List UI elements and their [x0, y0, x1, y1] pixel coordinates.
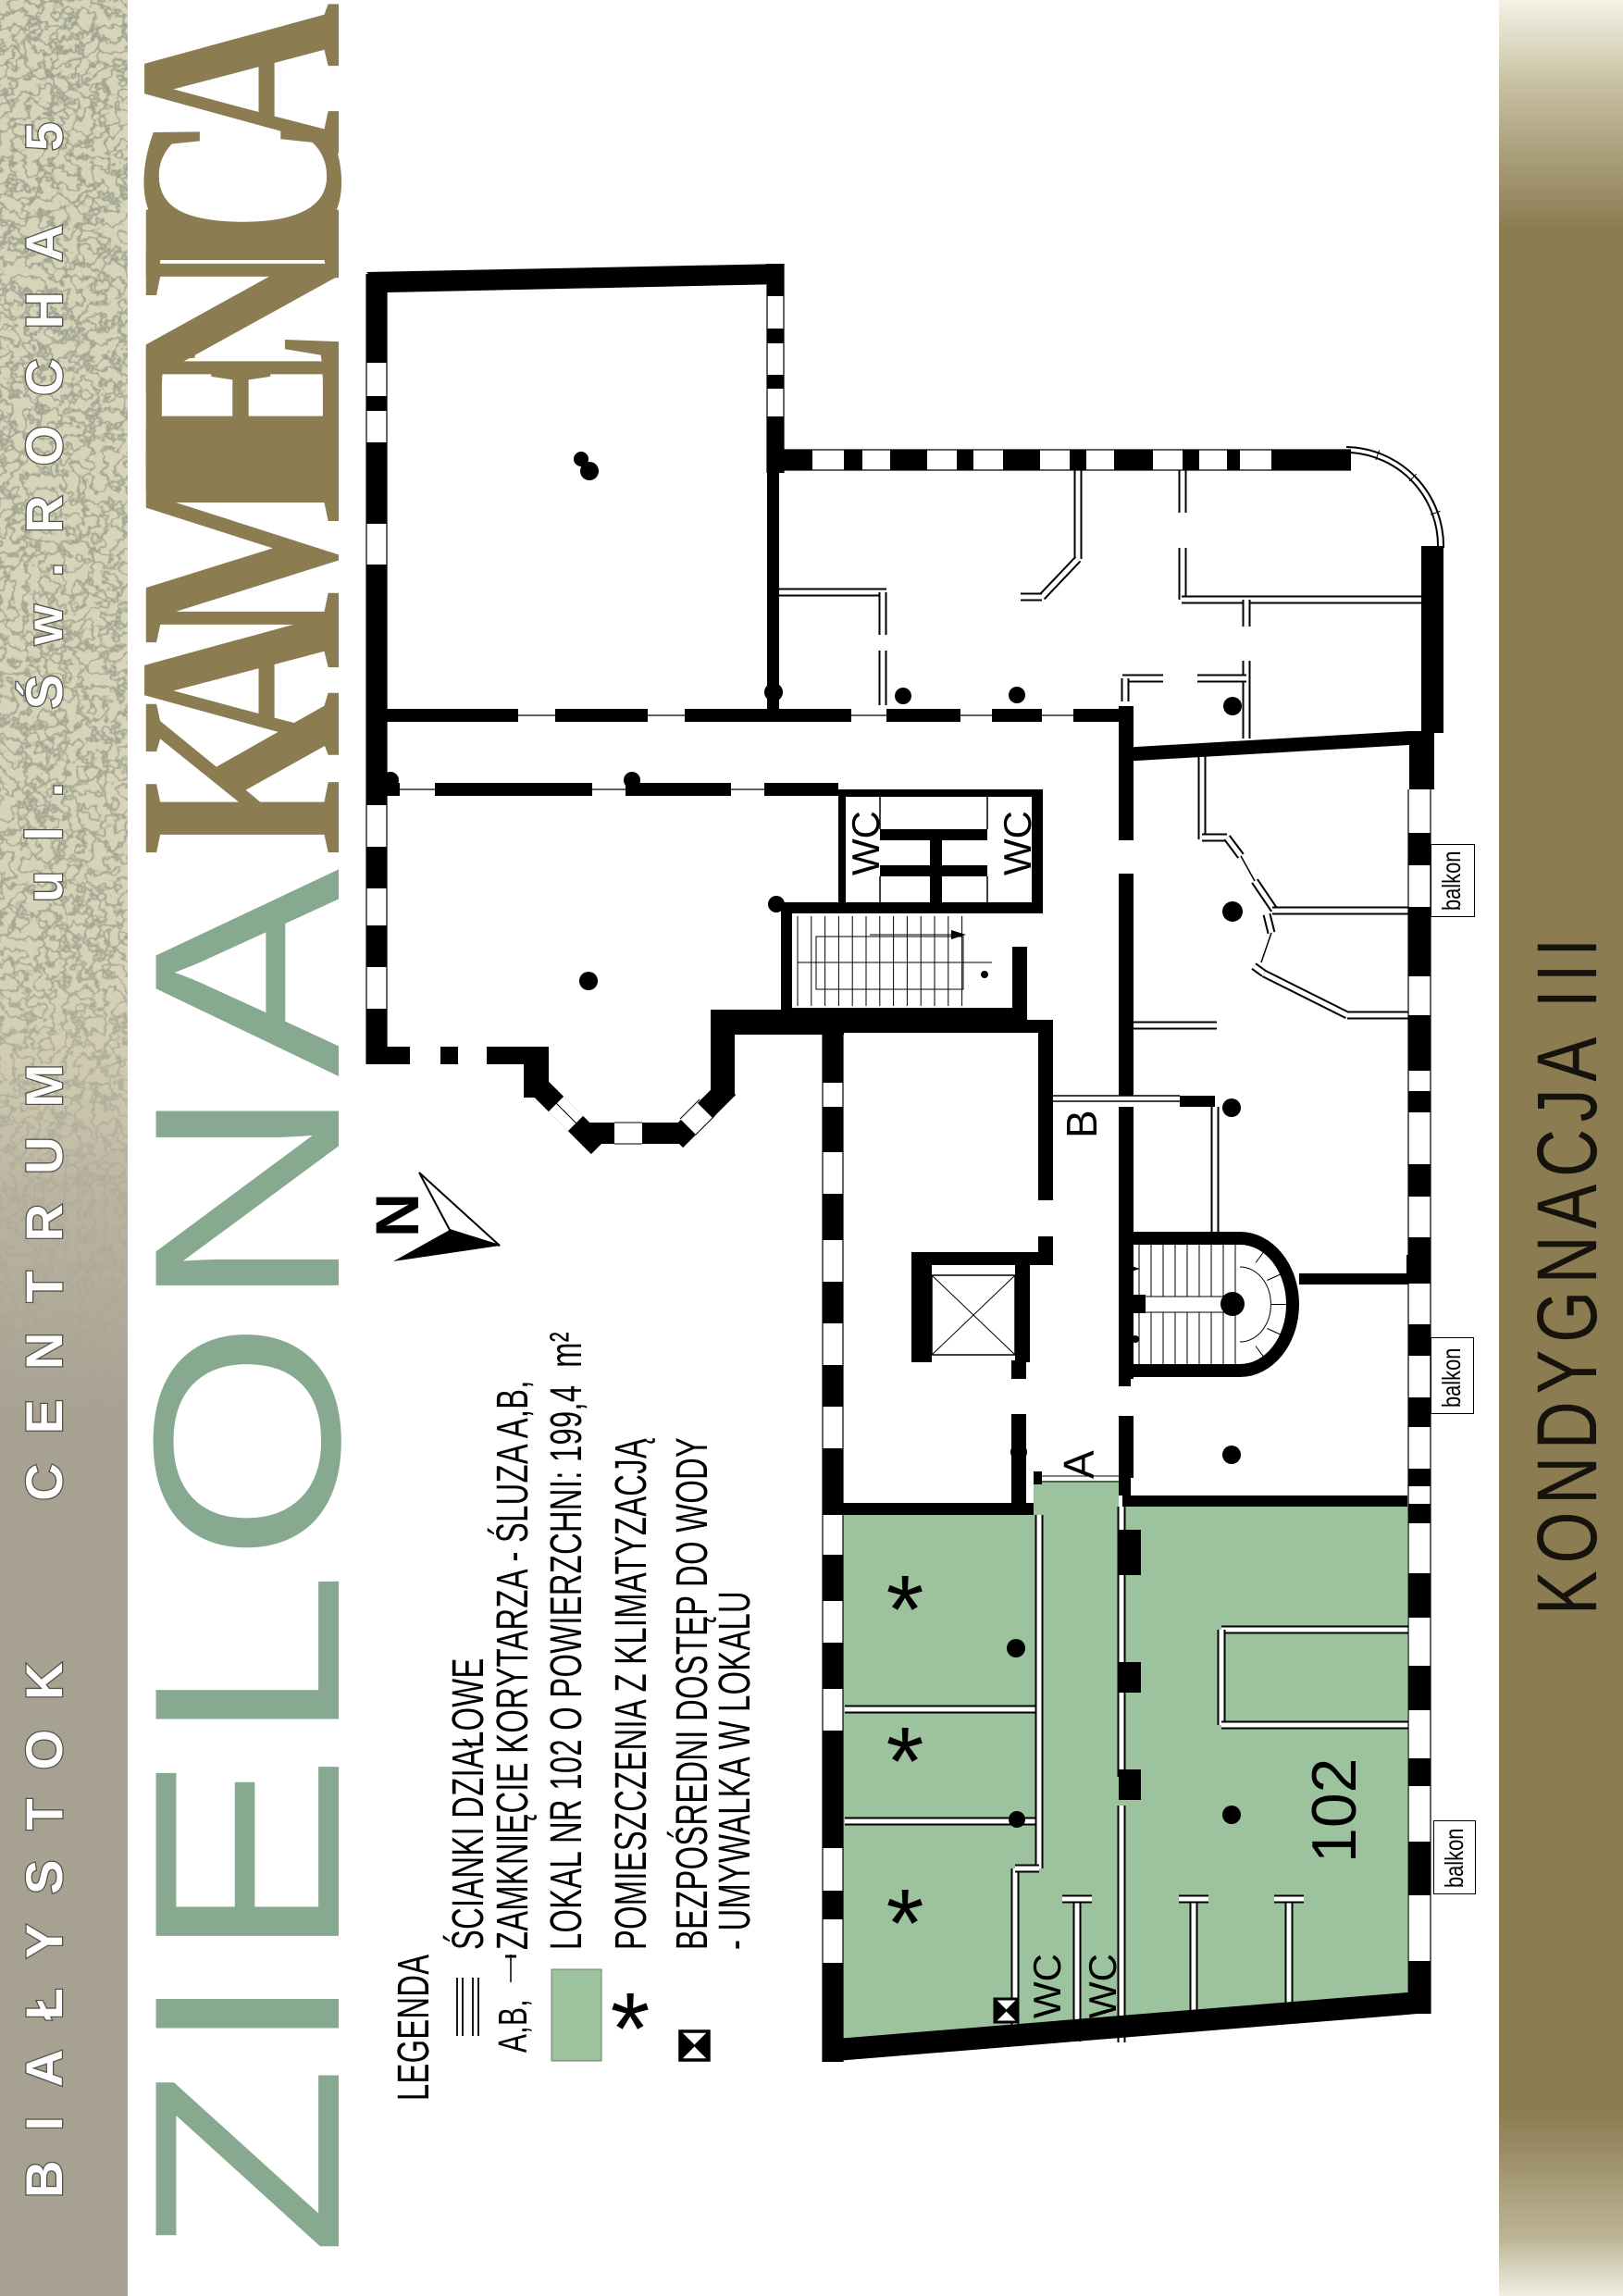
svg-text:*: *	[886, 1556, 924, 1664]
svg-text:*: *	[611, 1972, 650, 2086]
svg-text:*: *	[886, 1869, 924, 1978]
svg-text:*: *	[886, 1707, 924, 1816]
